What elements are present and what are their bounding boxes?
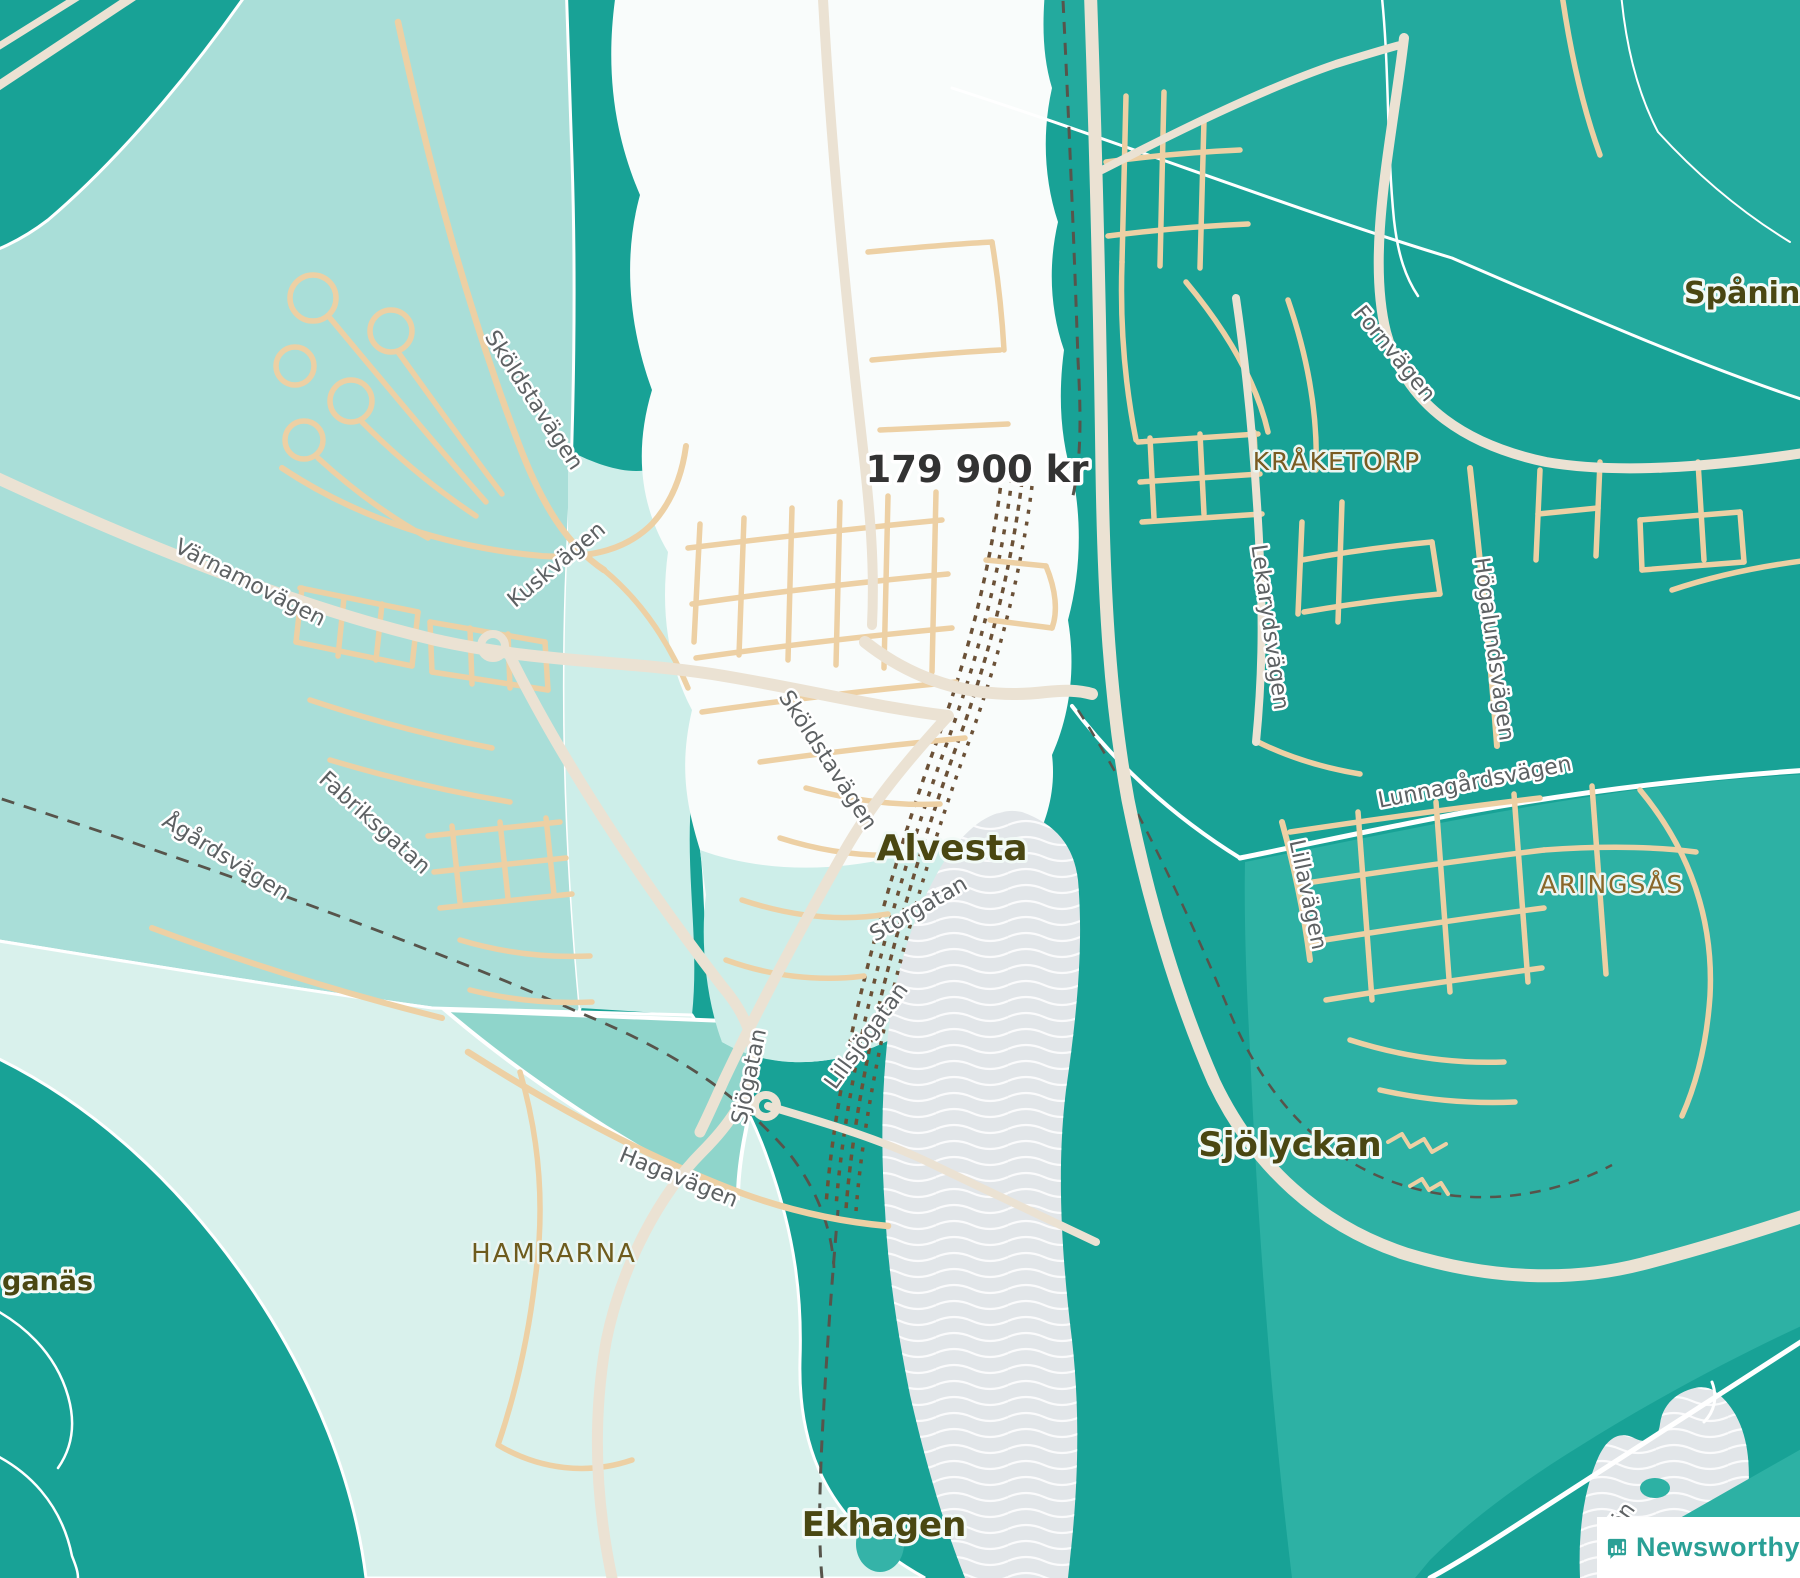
- locality-label-sjolyckan: Sjölyckan: [1198, 1125, 1381, 1165]
- map-canvas[interactable]: Värnamovägen Kuskvägen Sköldstavägen Skö…: [0, 0, 1800, 1578]
- newsworthy-logo-icon: [1607, 1524, 1627, 1572]
- locality-label-alvesta: Alvesta: [876, 828, 1027, 869]
- district-label-kraketorp: KRÅKETORP: [1253, 447, 1421, 476]
- locality-label-ganas: ganäs: [2, 1266, 93, 1297]
- islet-teal: [1640, 1478, 1670, 1498]
- district-label-hamrarna: HAMRARNA: [471, 1239, 637, 1269]
- district-label-aringsas: ARINGSÅS: [1540, 870, 1685, 899]
- map-screenshot: { "map": { "price_label": "179 900 kr", …: [0, 0, 1800, 1578]
- choropleth-regions: [0, 0, 1800, 1578]
- newsworthy-brand-text: Newsworthy: [1636, 1532, 1800, 1563]
- price-label: 179 900 kr: [865, 448, 1089, 491]
- newsworthy-watermark: Newsworthy: [1597, 1517, 1800, 1578]
- locality-label-spaning: Spånings: [1684, 275, 1800, 311]
- locality-label-ekhagen: Ekhagen: [802, 1505, 967, 1545]
